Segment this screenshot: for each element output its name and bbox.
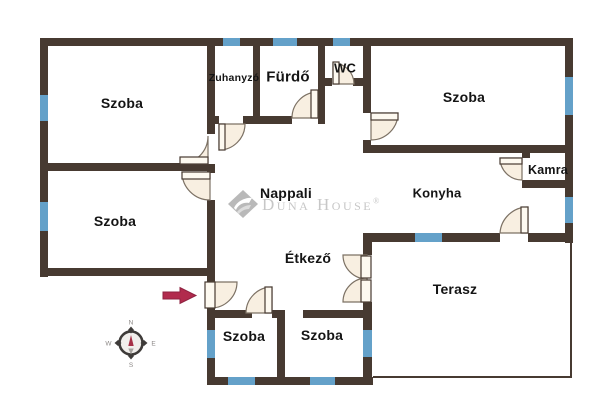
room-label-etkezo: Étkező: [285, 250, 331, 266]
room-label-szoba-bottom-left: Szoba: [223, 328, 265, 344]
room-label-szoba-top-left: Szoba: [101, 95, 143, 111]
room-label-szoba-top-right: Szoba: [443, 89, 485, 105]
room-label-konyha: Konyha: [413, 186, 462, 201]
room-label-szoba-bottom-mid: Szoba: [301, 327, 343, 343]
room-label-furdo: Fürdő: [266, 69, 310, 86]
registered-mark: ®: [373, 196, 379, 205]
room-label-kamra: Kamra: [528, 163, 568, 177]
room-label-terasz: Terasz: [433, 281, 478, 297]
floor-plan: N E S W Duna House® Szoba Szoba Zuhanyzó…: [0, 0, 600, 411]
room-label-szoba-mid-left: Szoba: [94, 213, 136, 229]
room-label-wc: WC: [334, 61, 356, 76]
room-label-nappali: Nappali: [260, 185, 312, 201]
room-label-zuhanyzo: Zuhanyzó: [209, 72, 260, 84]
